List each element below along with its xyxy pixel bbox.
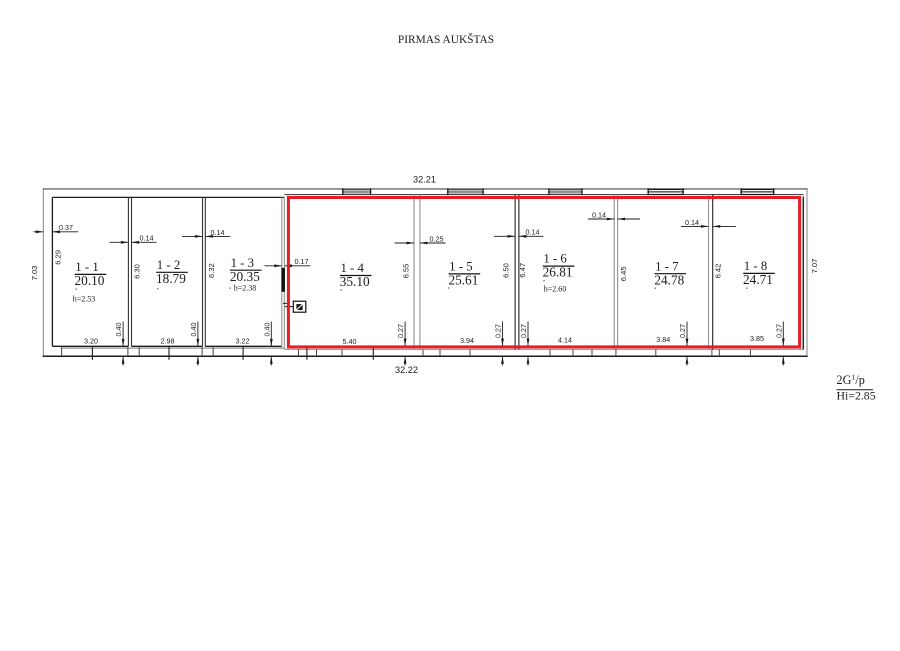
svg-text:0.27: 0.27 <box>678 324 687 338</box>
svg-text:5.40: 5.40 <box>343 337 357 346</box>
svg-text:2G1/p: 2G1/p <box>837 373 865 387</box>
svg-text:PIRMAS AUKŠTAS: PIRMAS AUKŠTAS <box>398 34 494 46</box>
svg-text:1 - 7: 1 - 7 <box>655 259 679 273</box>
svg-text:20.35: 20.35 <box>230 269 260 284</box>
svg-text:24.71: 24.71 <box>743 272 773 287</box>
svg-text:0.27: 0.27 <box>494 324 503 338</box>
svg-text:35.10: 35.10 <box>340 274 370 289</box>
svg-text:2.98: 2.98 <box>161 337 175 346</box>
svg-text:0.40: 0.40 <box>262 323 271 337</box>
svg-text:1 - 2: 1 - 2 <box>157 258 180 272</box>
svg-text:0.25: 0.25 <box>430 234 444 243</box>
svg-text:7.03: 7.03 <box>30 266 39 281</box>
svg-text:0.27: 0.27 <box>774 324 783 338</box>
svg-text:0.14: 0.14 <box>140 234 154 243</box>
svg-text:6.55: 6.55 <box>402 264 411 279</box>
svg-text:24.78: 24.78 <box>654 272 684 287</box>
svg-text:h=2.60: h=2.60 <box>544 284 567 293</box>
svg-text:6.30: 6.30 <box>133 264 142 279</box>
svg-text:6.50: 6.50 <box>502 263 511 278</box>
svg-text:0.14: 0.14 <box>685 218 699 227</box>
svg-text:25.61: 25.61 <box>448 273 478 288</box>
svg-text:0.14: 0.14 <box>211 228 225 237</box>
svg-text:3.84: 3.84 <box>656 335 670 344</box>
svg-text:3.85: 3.85 <box>750 334 764 343</box>
svg-text:4.14: 4.14 <box>558 336 572 345</box>
svg-text:3.22: 3.22 <box>236 337 250 346</box>
svg-text:6.45: 6.45 <box>619 266 628 281</box>
svg-text:3.94: 3.94 <box>460 336 474 345</box>
svg-text:18.79: 18.79 <box>156 271 186 286</box>
svg-text:0.40: 0.40 <box>114 323 123 337</box>
svg-text:0.37: 0.37 <box>59 223 73 232</box>
svg-text:6.42: 6.42 <box>714 264 723 279</box>
svg-text:0.40: 0.40 <box>189 323 198 337</box>
svg-text:1 - 4: 1 - 4 <box>340 261 364 275</box>
svg-text:32.22: 32.22 <box>395 365 418 375</box>
svg-text:0.14: 0.14 <box>592 210 606 219</box>
svg-text:6.29: 6.29 <box>53 250 62 265</box>
svg-text:1 - 6: 1 - 6 <box>543 252 567 266</box>
svg-text:Hi=2.85: Hi=2.85 <box>837 389 876 403</box>
svg-text:3.20: 3.20 <box>84 337 98 346</box>
svg-text:6.47: 6.47 <box>518 263 527 278</box>
svg-text:6.32: 6.32 <box>207 263 216 278</box>
svg-text:0.27: 0.27 <box>396 324 405 338</box>
svg-text:32.21: 32.21 <box>413 174 436 184</box>
svg-text:h=2.38: h=2.38 <box>234 284 257 293</box>
svg-text:0.27: 0.27 <box>519 324 528 338</box>
svg-text:20.10: 20.10 <box>75 273 105 288</box>
svg-text:26.81: 26.81 <box>543 265 573 280</box>
svg-text:1 - 5: 1 - 5 <box>449 260 472 274</box>
svg-text:1 - 8: 1 - 8 <box>744 259 767 273</box>
svg-text:1 - 1: 1 - 1 <box>75 260 98 274</box>
svg-text:7.07: 7.07 <box>810 259 819 274</box>
svg-text:0.17: 0.17 <box>295 257 309 266</box>
svg-text:1 - 3: 1 - 3 <box>231 256 254 270</box>
svg-text:h=2.53: h=2.53 <box>73 294 96 303</box>
svg-text:0.14: 0.14 <box>526 228 540 237</box>
